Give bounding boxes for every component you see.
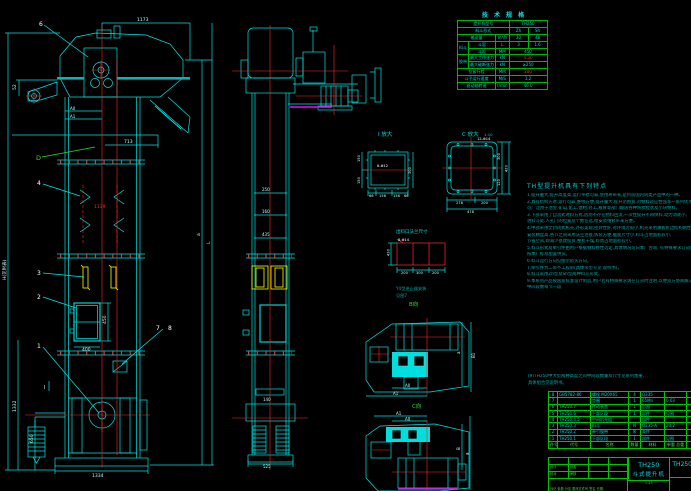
spec-label: 提升机型号	[458, 21, 510, 28]
flange-band-3	[57, 351, 145, 355]
spec-value: Zh	[509, 27, 528, 34]
product-name: 斗式提升机	[633, 470, 666, 478]
note-line: 5.料斗形式及牵引件由用户根据物料特性选定,具体情况可向本厂咨询, 有特殊要求订…	[527, 246, 691, 253]
dim-bucket-pitch: 1139	[94, 204, 106, 210]
spec-value: 4.30	[509, 55, 547, 62]
tb-signature-row: 标记 处数 分区 更改文件号 签名 日期	[550, 486, 603, 491]
dim-side-b3: 435	[262, 232, 270, 237]
detail-inlet-dims	[388, 243, 445, 273]
spec-unit: m³/h	[496, 34, 510, 41]
title-block-title: TH250 斗式提升机 1:25	[628, 458, 670, 491]
dim-door-w: 400	[82, 347, 91, 353]
spec-label: 斗容	[469, 41, 496, 48]
note-line: 按本厂标准配置供货。	[527, 252, 691, 259]
spec-value: 450	[509, 48, 547, 55]
buckets	[81, 265, 287, 290]
dim-a0: A0	[70, 106, 76, 111]
spec-unit: kN	[496, 62, 510, 69]
detail-inlet-flange	[397, 239, 445, 265]
note-line: 3.下部采用了自流式进料方式,因而不存在物料回流,一次性提升不再倒料,动力消耗小…	[527, 213, 691, 220]
spec-label: 拉紧行程	[458, 69, 496, 76]
main-elevation-view	[5, 23, 214, 474]
bolt-labels: 8-Φ12 12-Φ14 8-Φ14	[377, 137, 491, 242]
side-elevation-view	[241, 27, 381, 467]
dim-c-r2: 120	[497, 178, 501, 186]
bolt-i-label: 8-Φ12	[377, 164, 388, 168]
dim-l-right: L	[206, 241, 212, 244]
plan2-b: B	[456, 447, 461, 450]
plan1-a: a	[456, 351, 461, 354]
note-line: 2.具有结构先进,运行可靠,维修方便,提升量大,提升范围宽,对物料适应性强等一系…	[527, 200, 691, 207]
spec-label: 最大破断张力	[469, 62, 496, 69]
title-block-number: TH250	[670, 458, 691, 491]
note-line: 7.牵引件为二带不工胶带(具体带型号见 说明书)。	[527, 266, 691, 273]
dim-in-left: 430	[387, 248, 391, 256]
notes-block: TH型提升机具有下列特点 1.提升量大,提升高度高,运行平稳可靠,使用寿命长,是…	[527, 181, 691, 292]
flange-band-1	[57, 160, 145, 164]
spec-value: ≥250	[509, 62, 547, 69]
spec-value: Sh	[528, 27, 547, 34]
leader-2: 2	[37, 294, 41, 301]
note-y4a: Y4型逆止器安装	[395, 285, 427, 292]
section-d-label: D	[36, 154, 41, 162]
notes-title: TH型提升机具有下列特点	[527, 181, 691, 190]
dim-left-h1: 1332	[12, 400, 18, 412]
spec-label: 斗距	[469, 48, 496, 55]
leader-6: 6	[39, 21, 43, 28]
plan2-a0: A0	[405, 417, 411, 422]
spec-group: 料斗	[458, 41, 469, 55]
tb-label-draw: 制图	[570, 466, 576, 469]
dim-side-b2: 160	[262, 209, 270, 214]
plan-view-b	[366, 322, 471, 396]
title-block-signatures: 设计 制图 校对 审核 标记 处数 分区 更改文件号 签名 日期	[549, 458, 628, 491]
tb-label-design: 设计	[550, 466, 556, 469]
dim-c-b3: 478	[467, 210, 475, 214]
spec-value: TH250	[509, 21, 547, 28]
dim-side-base: 525	[263, 464, 271, 469]
dim-base-w: 1334	[92, 473, 104, 479]
plan1-a1: A1	[393, 391, 399, 396]
dim-side-takeup: 140	[263, 397, 271, 402]
notes-footnote: (9)TH250中大型两种高度之间中间段数量及尺寸见系列图册, 具体组合见说明书…	[528, 374, 691, 387]
note-line: 1.提升量大,提升高度高,运行平稳可靠,使用寿命长,是目前国内同类产品中的一种。	[527, 193, 691, 200]
leader-3: 3	[37, 270, 41, 277]
dim-h-total: H(见附表)	[1, 259, 8, 280]
note-foot-line: 具体组合见说明书。	[528, 381, 691, 388]
bom-header-row: 件号代号名称数量材料单重 总重备注	[549, 442, 691, 448]
dim-side-b1: 250	[262, 187, 270, 192]
dim-door-h: 450	[102, 315, 108, 324]
dimension-texts: 1173 52 713 1139 450 400 1332 650 1334 H…	[1, 17, 271, 479]
spec-value: 30	[509, 34, 528, 41]
spec-label: 斗子运行速度	[458, 76, 496, 83]
dim-i-b4: 66	[404, 194, 409, 198]
spec-table-title: 技 术 规 格	[458, 10, 550, 19]
dim-i-right: 300	[408, 166, 412, 174]
detail-dims: 150 150 300 66 156 156 66 300 120 420 27…	[357, 152, 509, 275]
dim-i-b2: 156	[379, 194, 387, 198]
note-line: 6.料斗运行方向见图示箭头方向。	[527, 259, 691, 266]
dim-in-b1: 200	[401, 271, 409, 275]
dim-c-b2: 200	[481, 201, 489, 205]
bolt-inlet-label: 8-Φ14	[398, 238, 410, 242]
dim-c-b1: 278	[456, 201, 464, 205]
tb-right-grid	[670, 477, 691, 491]
note-line: 中间段数每节一段	[527, 285, 691, 292]
note-line: 8.料斗采用Zh型及Sh型两种料斗形式。	[527, 272, 691, 279]
spec-unit: r/min	[496, 83, 510, 90]
spec-unit: MM	[496, 48, 510, 55]
dim-left-h2: 650	[29, 434, 35, 443]
spec-table: 提升机型号TH250 料斗形式ZhSh 输送量m³/h3048 料斗斗容L31.…	[457, 20, 548, 90]
spec-label: 驱动轴转速	[458, 83, 496, 90]
view-i-label: I 放大	[378, 130, 393, 138]
plan-view-c	[366, 416, 470, 491]
dim-i-b1: 66	[369, 194, 374, 198]
spec-unit: M/S	[496, 76, 510, 83]
note-line: 4.中部采用全封闭式机壳,外形美观,密封性好,对环境污染小,机壳采用薄板折边结构…	[527, 226, 691, 233]
note-line: 安装精度高,各节之间采用法兰连接,拆装方便,截面尺寸小,料斗占地面积较小,	[527, 233, 691, 240]
note-y4b: 见图7	[396, 293, 407, 299]
dim-in-b2: 300	[416, 271, 424, 275]
tb-label-audit: 审核	[570, 473, 576, 476]
bom-table: 8GB5782-86螺栓 M20X654Q235 7垫圈165Mn0.03 6T…	[548, 391, 691, 449]
dim-a-right: a	[197, 233, 202, 236]
dim-a1: A1	[70, 114, 76, 119]
spec-value: 200	[509, 69, 547, 76]
note-line: 可广泛用于冶金,矿山,化工,建材,轻工,粮食等部门输送各种粉状粒状及小块物料。	[527, 206, 691, 213]
detail-view-i	[362, 150, 413, 196]
drawing-scale: 1:25	[628, 480, 669, 485]
spec-unit: kN	[496, 55, 510, 62]
cad-drawing-sheet: 6 4 3 2 1 7 8 I D B向 C向 1173 52 713 1139…	[0, 0, 691, 491]
leader-7: 7	[156, 325, 160, 332]
plan2-a1: A1	[396, 411, 402, 416]
spec-value: 1.2	[509, 76, 547, 83]
plan1-a0: A0	[405, 383, 411, 388]
view-c-dir-label: C向	[412, 402, 421, 410]
flange-band-2	[57, 254, 145, 258]
dim-in-b3: 200	[432, 271, 440, 275]
spec-value: 3	[509, 41, 528, 48]
dim-i-b3: 156	[393, 194, 401, 198]
note-line: 节省空间,即减少基建投资,整机干燥,料周占地面积较小。	[527, 239, 691, 246]
spec-label: 料斗形式	[458, 27, 510, 34]
bolt-c-label: 12-Φ14	[477, 137, 491, 141]
spec-value: 1.6	[528, 41, 547, 48]
note-line: 9.本系列产品按国家标准设计制造,用户若有特殊要求请在订货时注明,以便双方协商解…	[527, 279, 691, 286]
dim-i-left1: 150	[357, 154, 361, 162]
plan1-b1: B1	[471, 352, 476, 358]
note-line: 进料斗处,人孔门的位置及个数任选,给安装维修带来方便。	[527, 219, 691, 226]
spec-label: 输送量	[458, 34, 496, 41]
tb-label-check: 校对	[550, 473, 556, 476]
magenta-accents	[290, 107, 458, 489]
dim-i-left2: 150	[357, 176, 361, 184]
dim-c-r1: 300	[497, 152, 501, 160]
leader-4: 4	[37, 180, 41, 187]
product-model: TH250	[638, 461, 659, 469]
dim-c-r3: 420	[505, 164, 509, 172]
spec-value: 46.0	[509, 83, 547, 90]
title-block: 设计 制图 校对 审核 标记 处数 分区 更改文件号 签名 日期 TH250 斗…	[548, 457, 691, 491]
section-i: I	[44, 385, 45, 391]
leader-8: 8	[168, 325, 172, 332]
spec-label: 最大工作张力	[469, 55, 496, 62]
spec-unit: MM	[496, 69, 510, 76]
spec-group: 胶带	[458, 55, 469, 69]
leader-1: 1	[37, 343, 41, 350]
view-b-label: B向	[409, 300, 418, 308]
bom-table-wrap: 8GB5782-86螺栓 M20X654Q235 7垫圈165Mn0.03 6T…	[548, 391, 691, 457]
drawing-number: TH250	[672, 461, 691, 468]
spec-value: 48	[528, 34, 547, 41]
dim-top-width: 1173	[137, 17, 149, 23]
inlet-title: 出料口法兰尺寸	[396, 228, 428, 235]
spec-unit: L	[496, 41, 510, 48]
dim-arm-h: 52	[12, 84, 18, 90]
dim-mid-width: 713	[124, 139, 133, 145]
